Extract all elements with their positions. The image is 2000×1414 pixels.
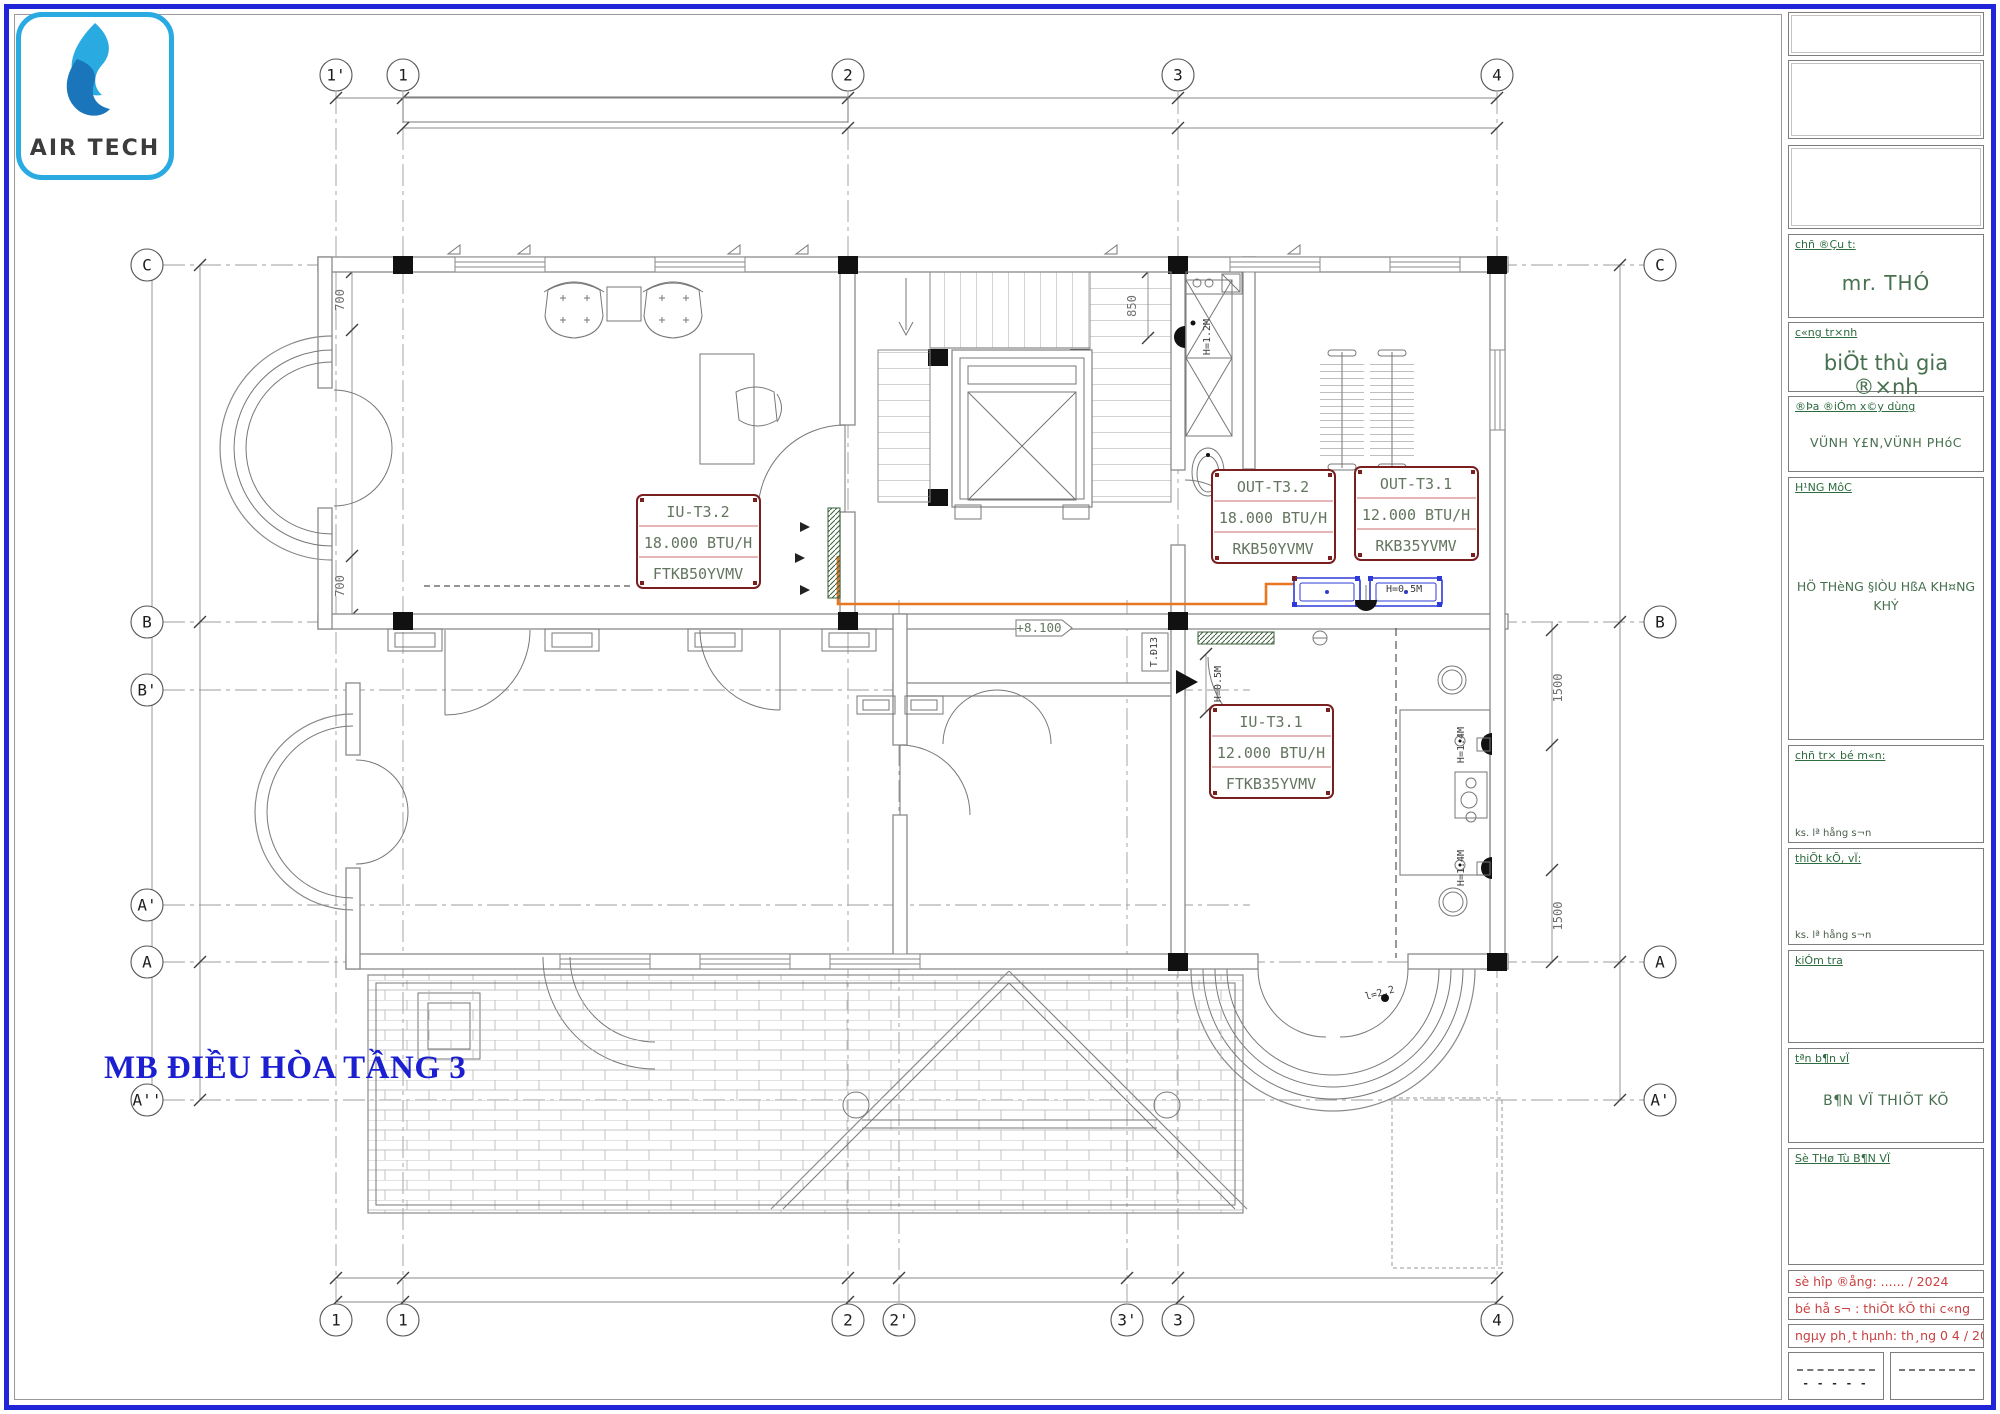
title-block: chñ ®Çu t: mr. THÓ c«ng tr×nh biÖt thù g… xyxy=(1788,10,1986,1402)
unit-capacity: 12.000 BTU/H xyxy=(1362,506,1470,524)
svg-text:B': B' xyxy=(137,681,156,700)
svg-text:B: B xyxy=(1655,613,1665,632)
svg-text:A: A xyxy=(142,953,152,972)
tb-project-value: biÖt thù gia ®×nh xyxy=(1789,351,1983,399)
svg-text:A: A xyxy=(1655,953,1665,972)
furniture xyxy=(544,282,782,464)
label-out-t31: OUT-T3.1 12.000 BTU/H RKB35YVMV xyxy=(1355,467,1478,560)
tb-owner-value: mr. THÓ xyxy=(1789,271,1983,295)
len-text: l=2.2 xyxy=(1364,984,1396,1002)
level-text: +8.100 xyxy=(1016,620,1061,635)
tb-lead: chñ tr× bé m«n: ks. lª hång s¬n xyxy=(1788,745,1984,843)
tb-drawing-name-value: B¶N VÏ THIÕT KÕ xyxy=(1789,1093,1983,1109)
svg-text:B: B xyxy=(142,613,152,632)
flame-icon xyxy=(21,17,159,117)
outdoor-unit-out-t32 xyxy=(1292,576,1360,607)
bathroom-top-right xyxy=(1186,272,1242,496)
svg-text:A': A' xyxy=(1650,1091,1669,1110)
tb-lead-name: ks. lª hång s¬n xyxy=(1795,828,1871,839)
tb-empty-3 xyxy=(1788,145,1984,229)
tb-location-label: ®Þa ®iÓm x©y dùng xyxy=(1795,400,1915,413)
tb-location: ®Þa ®iÓm x©y dùng VÜNH Y£N,VÜNH PHóC xyxy=(1788,396,1984,472)
tb-signature-left: - - - - - xyxy=(1788,1352,1884,1400)
drawing-sheet: 700 700 850 1500 1500 xyxy=(0,0,2000,1414)
svg-text:2': 2' xyxy=(889,1311,908,1330)
unit-capacity: 18.000 BTU/H xyxy=(1219,509,1327,527)
label-out-t32: OUT-T3.2 18.000 BTU/H RKB50YVMV xyxy=(1212,470,1335,563)
svg-text:C: C xyxy=(142,256,152,275)
svg-text:C: C xyxy=(1655,256,1665,275)
unit-capacity: 18.000 BTU/H xyxy=(644,534,752,552)
h05-balcony-text: H=0.5M xyxy=(1386,584,1422,595)
h05-corridor-text: H=0.5M xyxy=(1213,666,1224,702)
terrace xyxy=(368,971,1502,1268)
h12-text: H=1.2M xyxy=(1202,319,1213,355)
dim-1500-upper: 1500 xyxy=(1551,674,1565,703)
tb-project-label: c«ng tr×nh xyxy=(1795,326,1857,339)
unit-model: FTKB50YVMV xyxy=(653,565,743,583)
unit-model: RKB35YVMV xyxy=(1375,537,1456,555)
tb-dossier: bé hå s¬ : thiÕt kÕ thi c«ng xyxy=(1788,1297,1984,1320)
tb-lead-label: chñ tr× bé m«n: xyxy=(1795,749,1885,762)
level-marker: +8.100 xyxy=(1016,620,1072,636)
tb-design-name: ks. lª hång s¬n xyxy=(1795,930,1871,941)
unit-model: FTKB35YVMV xyxy=(1226,775,1316,793)
label-iu-t32: IU-T3.2 18.000 BTU/H FTKB50YVMV xyxy=(637,495,760,588)
svg-text:1: 1 xyxy=(331,1311,341,1330)
svg-text:2: 2 xyxy=(843,66,853,85)
unit-capacity: 12.000 BTU/H xyxy=(1217,744,1325,762)
shaft-tag: T.Đ13 xyxy=(1142,633,1168,671)
dim-700-top: 700 xyxy=(333,289,347,311)
wardrobe-racks xyxy=(1320,350,1414,470)
tb-drawing-no: Sè THø Tù B¶N VÏ xyxy=(1788,1148,1984,1265)
airtech-logo: AIR TECH xyxy=(16,12,174,180)
stair-core xyxy=(878,272,1171,519)
h14-upper-text: H=1.4M xyxy=(1456,727,1467,763)
unit-id: IU-T3.1 xyxy=(1239,713,1302,731)
unit-model: RKB50YVMV xyxy=(1232,540,1313,558)
svg-text:1: 1 xyxy=(398,1311,408,1330)
svg-text:4: 4 xyxy=(1492,66,1502,85)
tb-project: c«ng tr×nh biÖt thù gia ®×nh xyxy=(1788,322,1984,392)
tb-owner-label: chñ ®Çu t: xyxy=(1795,238,1856,251)
tb-check: kiÓm tra xyxy=(1788,950,1984,1043)
dim-700-bottom: 700 xyxy=(333,575,347,597)
sheet-title: MB ĐIỀU HÒA TẦNG 3 xyxy=(104,1050,466,1087)
svg-text:2: 2 xyxy=(843,1311,853,1330)
tb-drawing-no-label: Sè THø Tù B¶N VÏ xyxy=(1795,1152,1890,1165)
bathroom-bottom-right xyxy=(1396,628,1492,958)
svg-text:1: 1 xyxy=(398,66,408,85)
unit-id: IU-T3.2 xyxy=(666,503,729,521)
svg-text:4: 4 xyxy=(1492,1311,1502,1330)
tb-location-value: VÜNH Y£N,VÜNH PHóC xyxy=(1789,435,1983,450)
tb-empty-1 xyxy=(1788,12,1984,56)
svg-text:3': 3' xyxy=(1117,1311,1136,1330)
tb-contract: sè hîp ®ång: ...... / 2024 xyxy=(1788,1270,1984,1293)
tb-category: H¹NG MôC HÖ THèNG §IÒU HßA KH¤NG KHÝ xyxy=(1788,477,1984,740)
floor-plan: 700 700 850 1500 1500 xyxy=(0,0,2000,1414)
svg-text:3: 3 xyxy=(1173,1311,1183,1330)
tb-signature-dashes: - - - - - xyxy=(1789,1377,1883,1390)
svg-text:A'': A'' xyxy=(133,1091,162,1110)
tb-issue: ngµy ph¸t hµnh: th¸ng 0 4 / 2024 xyxy=(1788,1324,1984,1348)
indoor-unit-iu-t31 xyxy=(1198,632,1274,644)
svg-text:1': 1' xyxy=(326,66,345,85)
tb-owner: chñ ®Çu t: mr. THÓ xyxy=(1788,234,1984,318)
logo-text: AIR TECH xyxy=(21,136,169,161)
tb-category-label: H¹NG MôC xyxy=(1795,481,1852,494)
svg-text:3: 3 xyxy=(1173,66,1183,85)
tb-category-value: HÖ THèNG §IÒU HßA KH¤NG KHÝ xyxy=(1789,578,1983,616)
tb-check-label: kiÓm tra xyxy=(1795,954,1843,967)
unit-id: OUT-T3.2 xyxy=(1237,478,1309,496)
tb-design-label: thiÕt kÕ, vÏ: xyxy=(1795,852,1861,865)
indoor-unit-iu-t32 xyxy=(828,508,840,598)
svg-text:A': A' xyxy=(137,896,156,915)
shaft-text: T.Đ13 xyxy=(1149,637,1160,667)
tb-signature-right xyxy=(1890,1352,1984,1400)
tb-drawing-name: tªn b¶n vÏ B¶N VÏ THIÕT KÕ xyxy=(1788,1048,1984,1143)
tb-drawing-name-label: tªn b¶n vÏ xyxy=(1795,1052,1849,1065)
label-iu-t31: IU-T3.1 12.000 BTU/H FTKB35YVMV xyxy=(1210,705,1333,798)
unit-id: OUT-T3.1 xyxy=(1380,475,1452,493)
tb-empty-2 xyxy=(1788,60,1984,139)
tb-design: thiÕt kÕ, vÏ: ks. lª hång s¬n xyxy=(1788,848,1984,945)
h14-lower-text: H=1.4M xyxy=(1456,850,1467,886)
dim-1500-lower: 1500 xyxy=(1551,902,1565,931)
exhaust-fan-icon xyxy=(1355,600,1377,611)
